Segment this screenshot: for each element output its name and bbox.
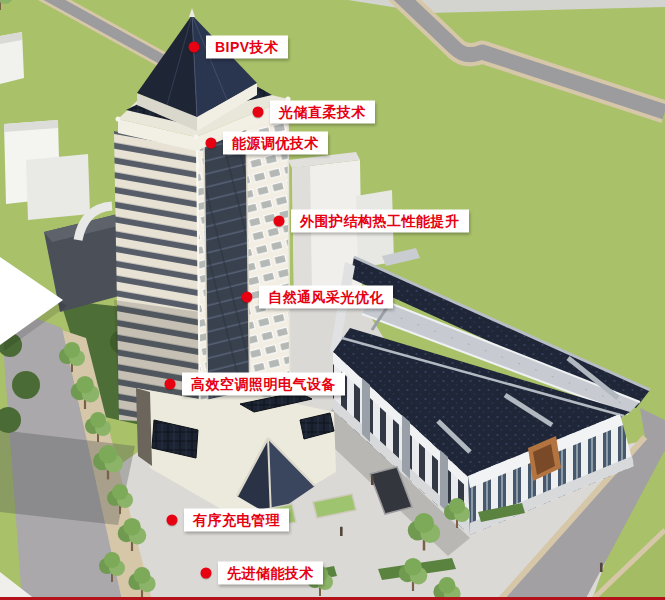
annotation-label: 光储直柔技术	[270, 101, 375, 124]
annotation-label: BIPV技术	[206, 36, 288, 59]
annotation-label: 先进储能技术	[218, 562, 323, 585]
annotation-label: 自然通风采光优化	[259, 286, 393, 309]
annotation-dot	[189, 42, 200, 53]
annotation-label: 能源调优技术	[223, 132, 328, 155]
annotation-dot	[253, 107, 264, 118]
annotation-label: 高效空调照明电气设备	[182, 373, 345, 396]
annotation-dot	[165, 379, 176, 390]
annotation-label: 外围护结构热工性能提升	[291, 210, 469, 233]
annotation-dot	[167, 515, 178, 526]
annotation-dot	[274, 216, 285, 227]
annotation-dot	[206, 138, 217, 149]
annotation-dot	[242, 292, 253, 303]
annotation-label: 有序充电管理	[184, 509, 289, 532]
rendering-canvas: BIPV技术 光储直柔技术 能源调优技术 外围护结构热工性能提升 自然通风采光优…	[0, 0, 665, 600]
annotation-dot	[201, 568, 212, 579]
